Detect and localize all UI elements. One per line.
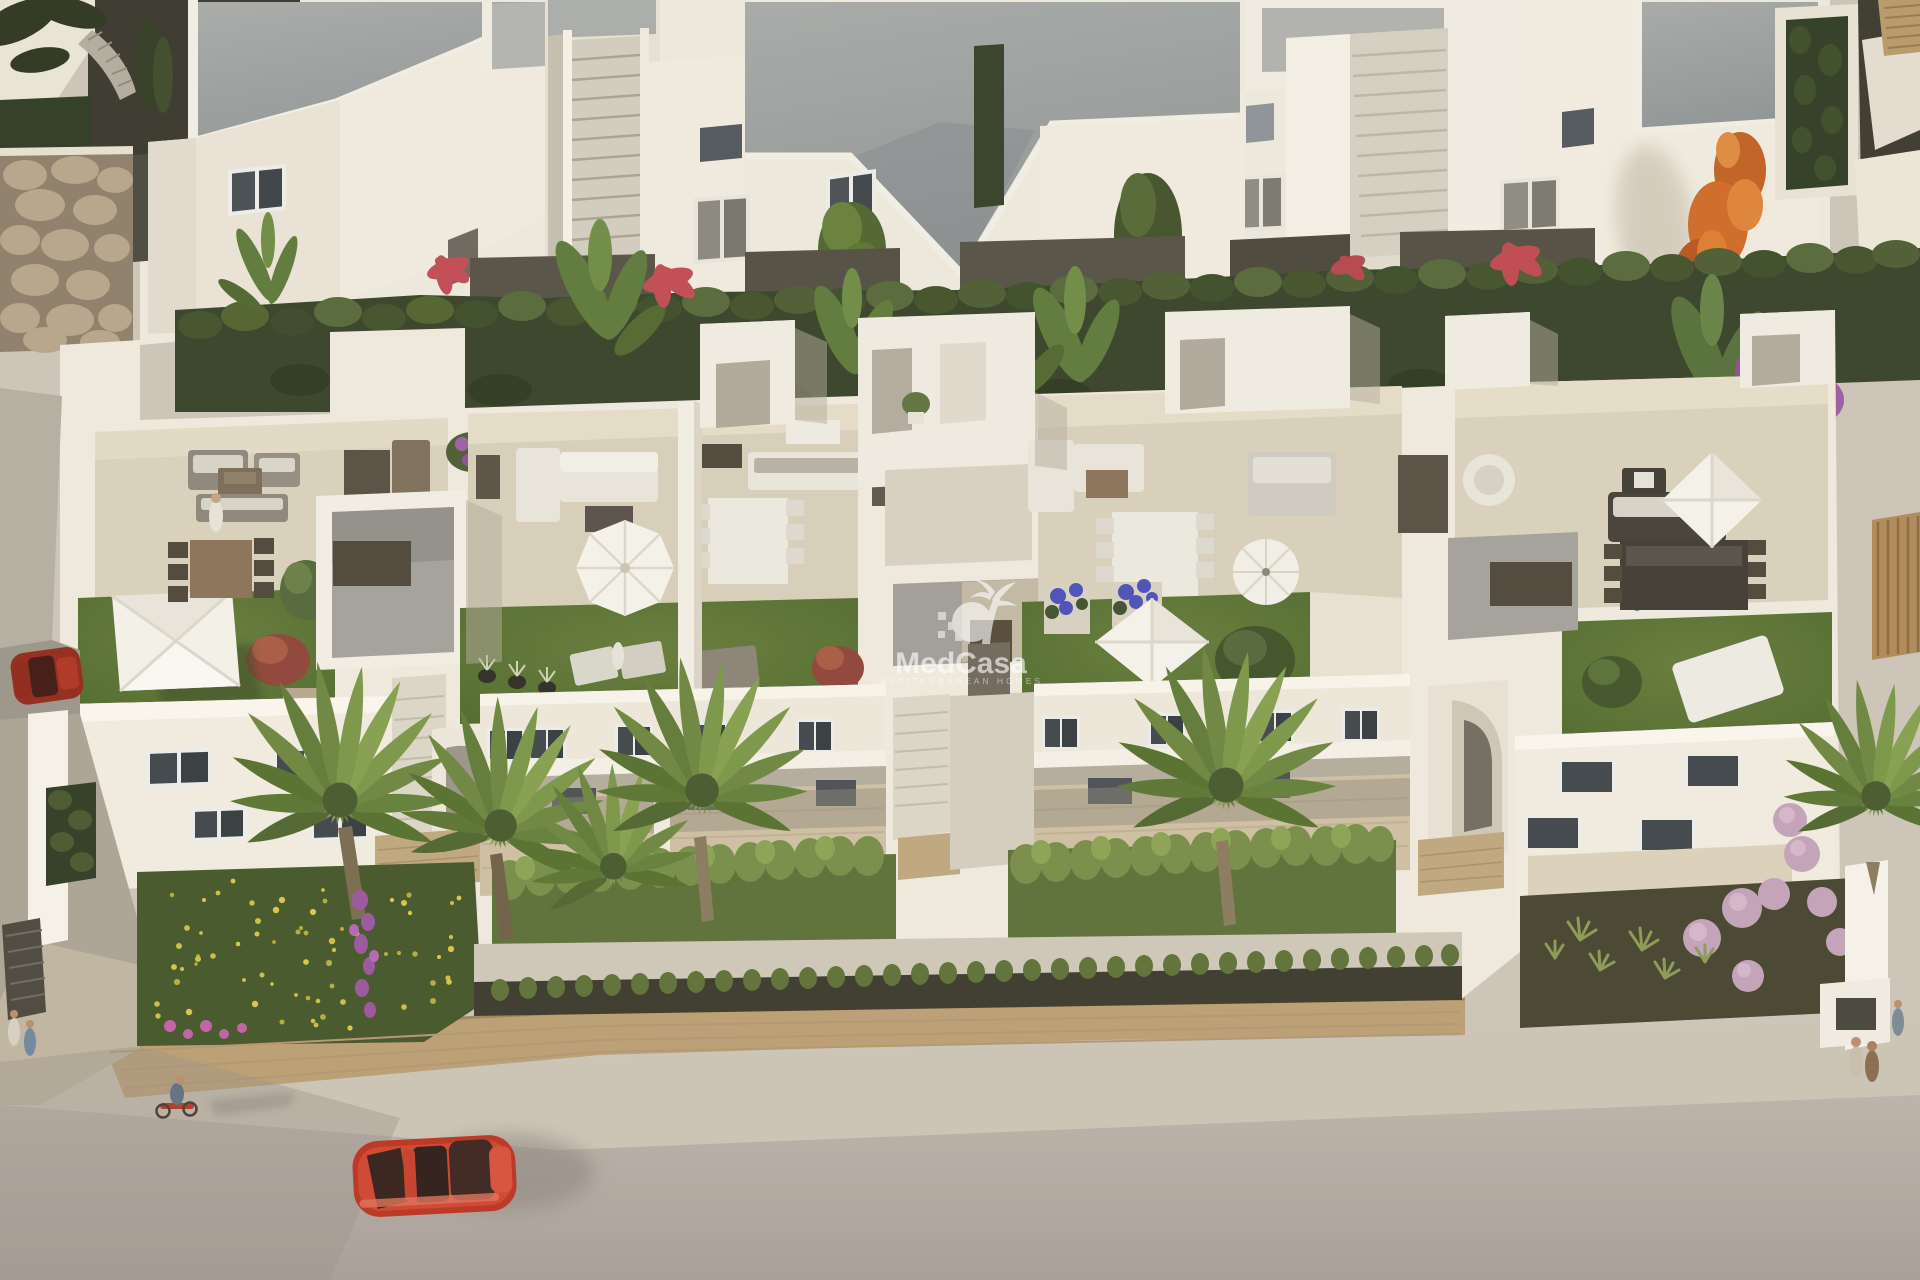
- svg-text:MEDITERRANEAN HOMES: MEDITERRANEAN HOMES: [879, 676, 1043, 686]
